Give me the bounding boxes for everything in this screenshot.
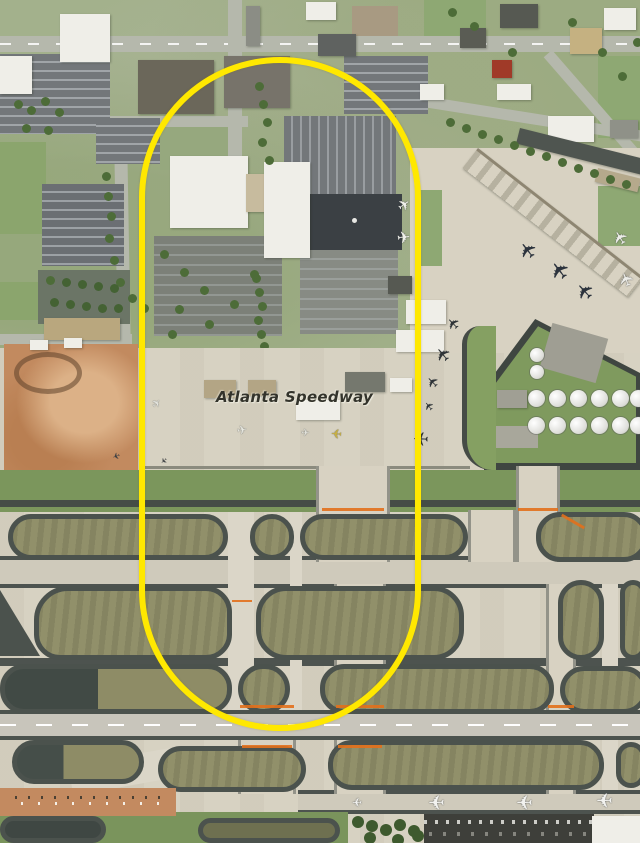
building [500, 4, 538, 28]
dirt-loop-road [14, 352, 82, 394]
fuel-tank [549, 417, 566, 434]
industrial-buildings [424, 814, 594, 843]
grass-island [616, 742, 640, 788]
grass-island [198, 818, 340, 843]
building [0, 56, 32, 94]
grass-island [536, 512, 640, 562]
shed [497, 390, 527, 408]
airplane-icon: ✈ [428, 792, 445, 812]
construction-equipment [15, 793, 165, 809]
hold-line [518, 508, 558, 511]
grass-island [12, 740, 144, 784]
place-label: Atlanta Speedway [216, 388, 373, 406]
building [610, 120, 638, 138]
building [592, 816, 640, 843]
fuel-tank [630, 417, 640, 434]
building [497, 84, 531, 100]
red-roof-building [492, 60, 512, 78]
airplane-icon: ✈ [352, 796, 362, 808]
taxiway-connector [468, 510, 516, 562]
building [460, 28, 486, 48]
airplane-icon: ✈ [596, 790, 613, 810]
hold-line [548, 705, 574, 708]
parking-lot [42, 184, 124, 266]
tree-cluster [14, 100, 23, 109]
grass-island [558, 580, 604, 660]
fuel-tank [528, 390, 545, 407]
dark-island [0, 816, 106, 843]
building [64, 338, 82, 348]
grass-patch [0, 282, 42, 320]
airplane-icon: ✈ [516, 792, 533, 812]
tree-cluster [448, 8, 457, 17]
fuel-tank [630, 390, 640, 407]
hold-line [242, 745, 292, 748]
fuel-tank [549, 390, 566, 407]
fuel-tank [612, 390, 629, 407]
fuel-tank [591, 390, 608, 407]
grass-wedge [462, 326, 496, 470]
building [30, 340, 48, 350]
building [604, 8, 636, 30]
building [44, 318, 120, 340]
building [420, 84, 444, 100]
fuel-tank [570, 417, 587, 434]
building [306, 2, 336, 20]
grass-island [620, 580, 640, 660]
fuel-tank [530, 348, 544, 362]
building [246, 6, 260, 46]
hold-line [338, 745, 382, 748]
fuel-tank [591, 417, 608, 434]
fuel-tank [530, 365, 544, 379]
map-canvas[interactable]: ✈ ✈ ✈ ✈ ✈ ✈ ✈ ✈ ✈ ✈ ✈ ✈ ✈ ✈ ✈ ✈ ✈ ✈ ✈ ✈ … [0, 0, 640, 843]
tree-cluster [352, 816, 364, 828]
tree-row [102, 172, 111, 181]
building [318, 34, 356, 56]
fuel-tank [612, 417, 629, 434]
tree-cluster [46, 276, 55, 285]
tree-row [446, 118, 455, 127]
building [60, 14, 110, 62]
fuel-tank [528, 417, 545, 434]
grass-patch [0, 142, 46, 234]
grass-island [158, 746, 306, 792]
fuel-tank [570, 390, 587, 407]
building [570, 28, 602, 54]
